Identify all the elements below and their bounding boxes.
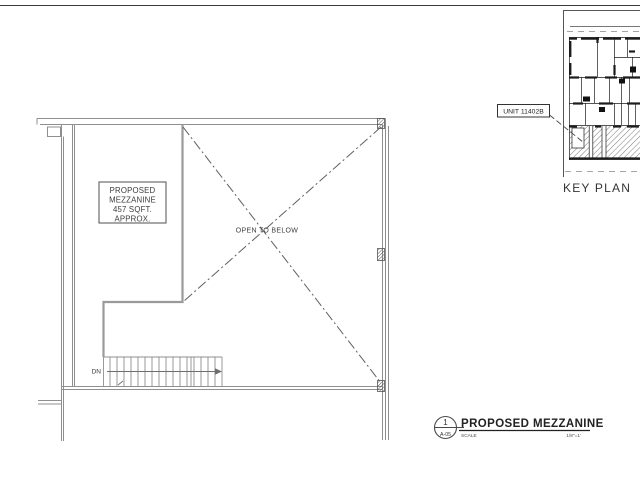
bottom-wall [62, 387, 383, 390]
mezzanine-label-line4: APPROX. [114, 215, 150, 224]
key-plan-thumbnail [569, 37, 640, 160]
detail-number: 1 [443, 418, 448, 427]
scale-label: SCALE [461, 433, 477, 439]
mezzanine-label-line3: 457 SQFT. [113, 205, 152, 214]
open-to-below-diagonals [183, 127, 381, 383]
top-left-column [48, 127, 61, 137]
scale-value: 1/8"=1' [566, 433, 581, 439]
mezzanine-edge [104, 125, 183, 358]
stairs [104, 357, 223, 387]
wall-columns [378, 119, 385, 392]
mezzanine-label-line1: PROPOSED [110, 186, 156, 195]
sheet-ref: A-05 [440, 432, 451, 438]
key-plan-panel: KEY PLAN [563, 10, 640, 195]
key-plan-label: KEY PLAN [563, 181, 631, 195]
left-wall [62, 125, 75, 442]
unit-tag-label: UNIT 11402B [503, 109, 544, 116]
mezzanine-label-line2: MEZZANINE [109, 196, 156, 205]
open-to-below-label: OPEN TO BELOW [236, 228, 298, 235]
plan-canvas: DN OPEN TO BELOW PROPOSED MEZZANINE 457 … [0, 0, 640, 480]
detail-bubble: 1 A-05 [435, 417, 465, 439]
keyplan-unit-hatch [569, 126, 640, 159]
down-label: DN [92, 369, 102, 376]
left-wall-stub [38, 401, 62, 405]
drawing-sheet: DN OPEN TO BELOW PROPOSED MEZZANINE 457 … [0, 0, 640, 480]
drawing-title: PROPOSED MEZZANINE [461, 418, 604, 430]
title-block: 1 A-05 PROPOSED MEZZANINE SCALE 1/8"=1' [435, 417, 604, 440]
top-wall [37, 119, 386, 125]
mezzanine-label-box: PROPOSED MEZZANINE 457 SQFT. APPROX. [99, 182, 166, 224]
